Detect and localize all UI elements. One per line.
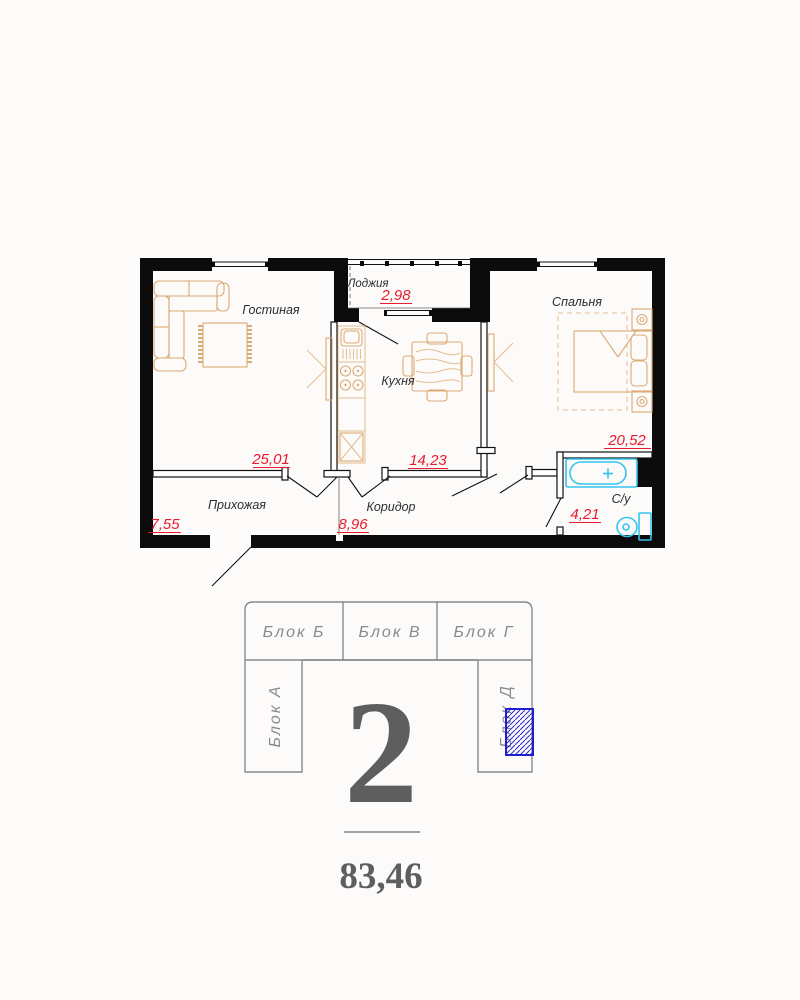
area-hall: 7,55 xyxy=(150,516,180,533)
kitchen-door xyxy=(348,477,362,497)
kitchen-counter xyxy=(338,326,365,463)
area-kitchen: 14,23 xyxy=(409,452,447,469)
room-label-corridor: Коридор xyxy=(366,500,415,514)
area-bedroom: 20,52 xyxy=(607,432,646,449)
bedroom-tv xyxy=(488,334,513,391)
loggia-left-wall xyxy=(334,258,348,322)
living-door xyxy=(287,476,317,497)
diagram-cell-block-v: Блок В xyxy=(358,624,421,641)
diagram-cell-block-b: Блок Б xyxy=(263,624,326,641)
room-label-kitchen: Кухня xyxy=(381,374,415,388)
bathtub xyxy=(566,459,637,487)
sofa xyxy=(154,281,229,371)
area-living: 25,01 xyxy=(251,451,290,468)
room-label-living: Гостиная xyxy=(242,303,299,317)
apartment-number: 2 xyxy=(344,671,418,835)
nightstand xyxy=(632,309,652,330)
block-diagram: Блок Б Блок В Блок Г Блок А Блок Д 2 83,… xyxy=(245,602,533,897)
bedroom-window xyxy=(536,262,598,267)
stove xyxy=(341,366,364,390)
entrance-door xyxy=(212,547,251,586)
living-room-window xyxy=(211,262,269,267)
room-label-hall: Прихожая xyxy=(208,498,266,512)
apartment-location-highlight xyxy=(506,709,533,755)
diagram-cell-block-a: Блок А xyxy=(267,684,284,747)
kitchen-corridor-wall xyxy=(385,471,487,478)
room-label-bathroom: С/у xyxy=(612,492,632,506)
nightstand xyxy=(632,391,652,412)
area-loggia: 2,98 xyxy=(380,287,411,304)
diagram-cell-block-g: Блок Г xyxy=(453,624,514,641)
bathroom-top-wall xyxy=(557,452,652,458)
fridge xyxy=(340,433,363,461)
bathroom-door xyxy=(546,498,561,527)
bed xyxy=(574,331,652,392)
total-area: 83,46 xyxy=(339,856,422,897)
rug xyxy=(201,323,250,367)
area-corridor: 8,96 xyxy=(338,516,368,533)
living-tv xyxy=(307,338,332,400)
room-label-bedroom: Спальня xyxy=(552,295,602,309)
area-bathroom: 4,21 xyxy=(570,506,599,523)
bathroom-left-wall xyxy=(557,452,563,498)
dining-table xyxy=(403,333,472,401)
bedroom-zone-dashed xyxy=(558,313,627,410)
loggia-kitchen-window xyxy=(384,310,432,316)
loggia-right-wall xyxy=(470,258,490,322)
kitchen-sink xyxy=(341,329,362,359)
floorplan-canvas: Гостиная Лоджия Кухня Спальня Прихожая К… xyxy=(0,0,800,1000)
hall-living-wall xyxy=(153,471,285,478)
